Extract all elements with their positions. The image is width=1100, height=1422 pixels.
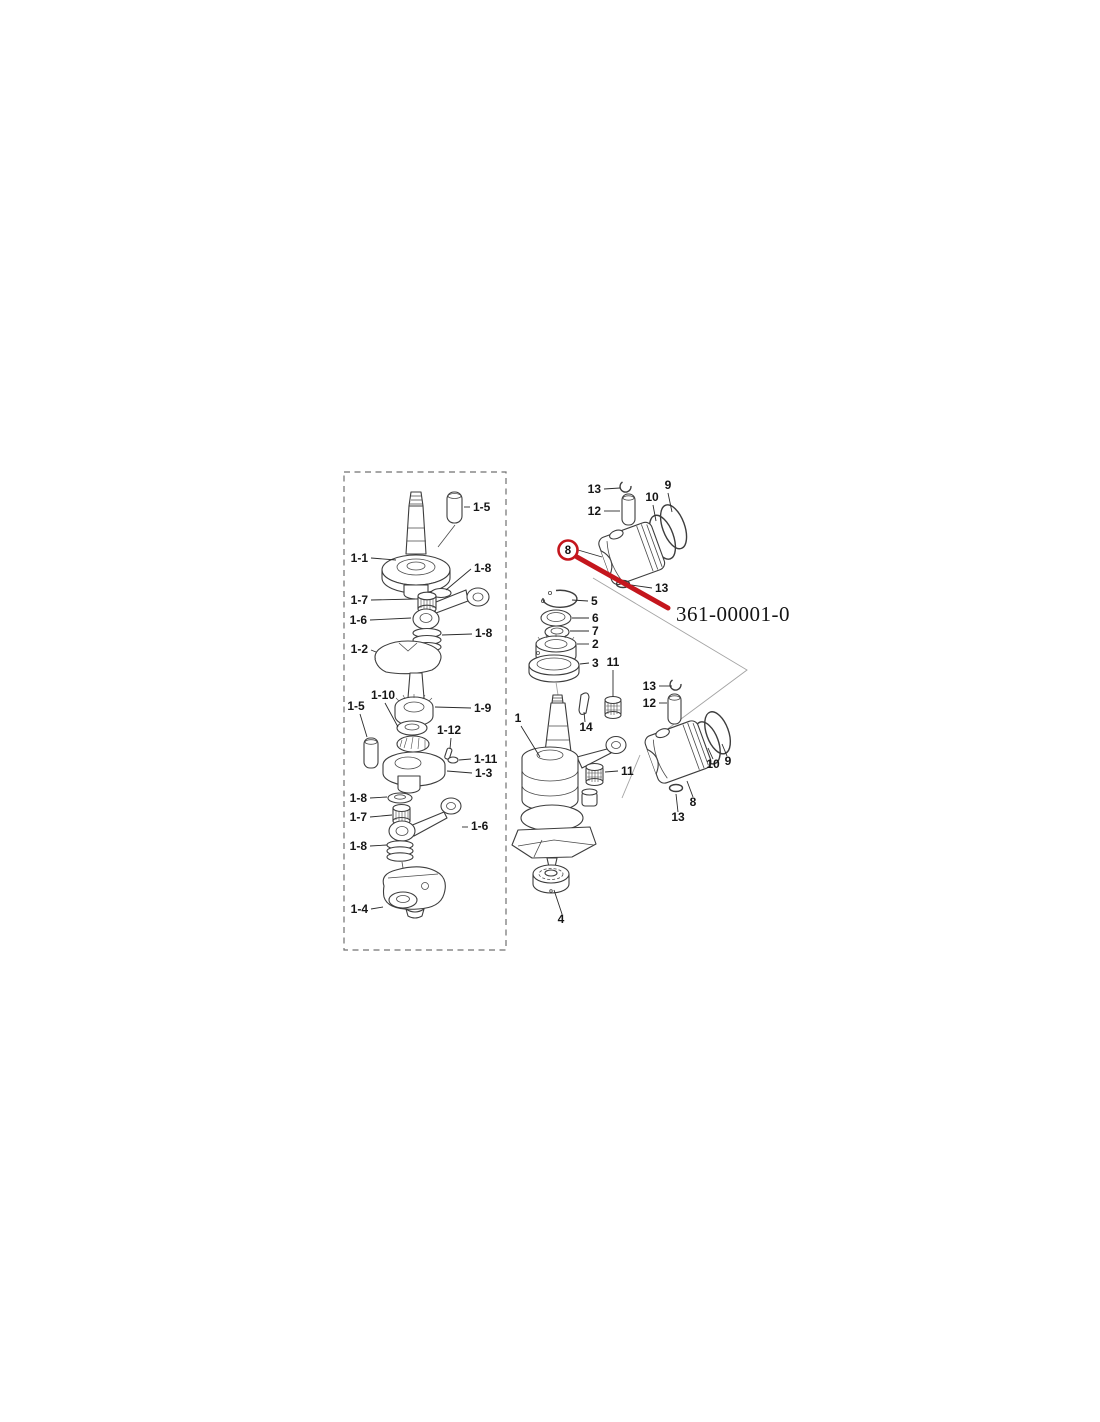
callout-label: 2 <box>592 637 599 651</box>
bearing-stack <box>529 590 579 695</box>
circlip-13-top <box>620 482 631 492</box>
callout-leader <box>572 600 588 601</box>
needle-bearing-11-lower <box>586 764 603 786</box>
callout-label: 6 <box>592 611 599 625</box>
callout-label: 3 <box>592 656 599 670</box>
needle-bearing-11-upper <box>605 697 621 719</box>
callout-label: 1-2 <box>351 642 369 656</box>
callout-leader <box>435 707 471 708</box>
callout-leader <box>370 845 387 846</box>
washer-6 <box>541 610 571 626</box>
callout-label: 9 <box>665 478 672 492</box>
callout-leader <box>360 714 367 737</box>
wrist-pin-12-top <box>622 494 635 525</box>
callout-label: 12 <box>643 696 657 710</box>
callout-leader <box>371 650 376 652</box>
callout-label: 1-1 <box>351 551 369 565</box>
callout-label: 1-10 <box>371 688 395 702</box>
callout-leader <box>554 890 562 914</box>
part-number-text: 361-00001-0 <box>676 602 790 626</box>
callout-leader <box>371 599 415 600</box>
callout-leader <box>605 771 618 772</box>
callout-label: 10 <box>645 490 659 504</box>
callout-label: 1-12 <box>437 723 461 737</box>
callout-leader <box>370 797 387 798</box>
crank-web-1-2 <box>375 641 441 674</box>
piston-8-bottom <box>642 717 712 785</box>
piston-pin-1-5-left <box>364 738 378 768</box>
callout-label: 11 <box>607 655 620 669</box>
callout-label: 7 <box>592 624 599 638</box>
callout-leader <box>653 505 656 521</box>
callout-label: 1-3 <box>475 766 493 780</box>
ball-bearing-4 <box>533 865 569 893</box>
circle-leader-line <box>578 550 602 557</box>
crank-journal-mid <box>408 673 424 698</box>
wrist-pin-12-bottom <box>668 694 681 724</box>
callout-label: 1-5 <box>347 699 365 713</box>
callout-label: 13 <box>655 581 669 595</box>
callout-leader <box>370 815 392 817</box>
callout-label: 1-7 <box>351 593 369 607</box>
callout-label: 1-4 <box>351 902 369 916</box>
callout-label: 1-8 <box>474 561 492 575</box>
callout-label: 8 <box>690 795 697 809</box>
callout-label: 11 <box>621 764 634 778</box>
spacer-1-10 <box>397 721 427 735</box>
gear-washer <box>397 736 429 752</box>
ring-3 <box>529 655 579 682</box>
piston-assembly-bottom <box>642 680 737 792</box>
callout-label: 5 <box>591 594 598 608</box>
crankshaft-main-1 <box>512 693 626 867</box>
woodruff-key-14 <box>579 693 589 715</box>
callout-leader <box>371 907 383 909</box>
callout-label: 10 <box>706 757 720 771</box>
callout-label: 1-6 <box>471 819 489 833</box>
callout-leader <box>580 663 589 664</box>
piston-pin-1-5-top <box>438 492 462 547</box>
exploded-parts-diagram: 1-51-11-81-71-61-81-21-101-51-91-121-111… <box>0 0 1100 1422</box>
crank-pin-lower <box>582 789 597 806</box>
circlip-5 <box>541 590 577 607</box>
circlip-13-bottom-lower <box>670 785 683 792</box>
callout-label: 13 <box>588 482 602 496</box>
callout-label: 13 <box>671 810 685 824</box>
callout-label: 1-8 <box>350 791 368 805</box>
callout-leader <box>604 488 620 489</box>
callout-label: 1-8 <box>475 626 493 640</box>
callout-label: 9 <box>725 754 732 768</box>
callout-leader <box>459 759 471 760</box>
callout-label: 14 <box>579 720 593 734</box>
callout-label: 1-9 <box>474 701 492 715</box>
rod-big-end-upper <box>413 609 439 629</box>
callout-label: 1-7 <box>350 810 368 824</box>
washer-1-8-lower <box>388 793 412 803</box>
connecting-rod-main-upper <box>577 737 626 769</box>
pin-1-11 <box>448 757 458 763</box>
callout-label: 1-8 <box>350 839 368 853</box>
callout-label: 1 <box>515 711 522 725</box>
crankshaft-upper-1-1 <box>382 492 450 599</box>
callout-label: 12 <box>588 504 602 518</box>
callout-leader <box>447 771 472 773</box>
callout-leader <box>668 493 672 512</box>
callout-label: 1-11 <box>474 752 498 766</box>
callout-leader <box>370 618 411 620</box>
callout-label: 1-6 <box>350 613 368 627</box>
callout-label: 1-5 <box>473 500 491 514</box>
crank-cap-1-4 <box>383 867 445 918</box>
parts-diagram-page: 1-51-11-81-71-61-81-21-101-51-91-121-111… <box>0 0 1100 1422</box>
highlighted-item-number: 8 <box>565 545 572 557</box>
callout-label: 13 <box>643 679 657 693</box>
circlip-13-bottom-upper <box>670 680 681 690</box>
callout-leader <box>450 738 451 749</box>
crank-disc-1-3 <box>383 752 445 793</box>
callout-label: 4 <box>558 912 565 926</box>
callout-leader <box>442 634 472 635</box>
